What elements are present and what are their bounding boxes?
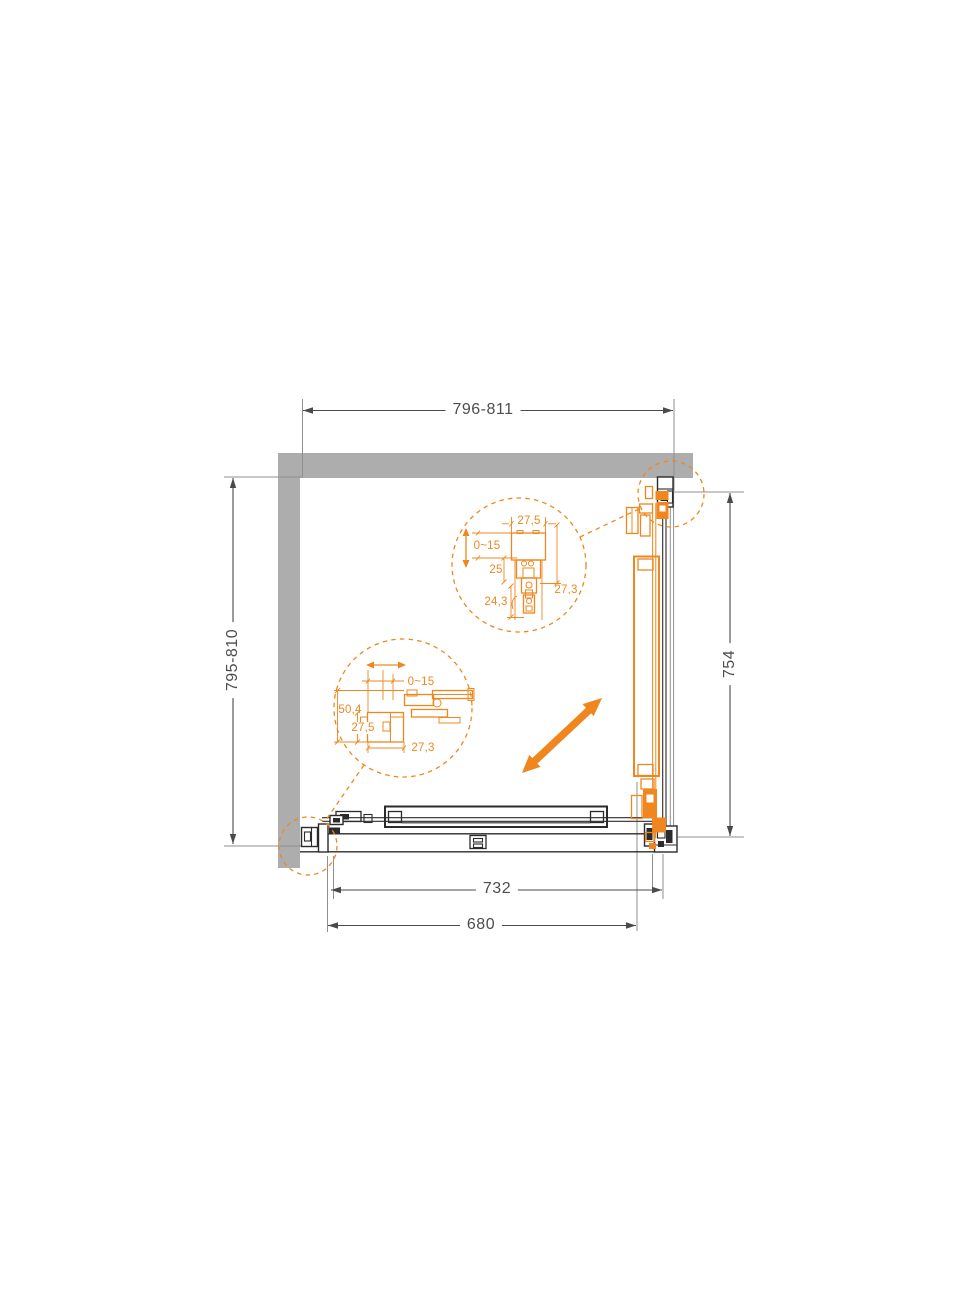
- detail-top-profile: [463, 517, 562, 620]
- side-panel: [663, 479, 674, 850]
- dim-right-height-label: 754: [720, 643, 740, 685]
- detail-top-width-label: 27,5: [517, 515, 540, 527]
- detail-side-width-label: 27,3: [411, 742, 434, 754]
- detail-top-adjust-label: 0~15: [474, 540, 501, 552]
- detail-side-adjust-label: 0~15: [408, 676, 435, 688]
- detail-top-depth-label: 27,3: [554, 584, 577, 596]
- detail-top-offset-label: 25: [489, 564, 502, 576]
- drawing-layer: [0, 0, 975, 1300]
- dim-top-width-label: 796-811: [445, 400, 520, 420]
- detail-side-height-label: 50,4: [338, 704, 361, 716]
- dim-bottom-outer-label: 732: [476, 879, 518, 899]
- bottom-door-assembly: [300, 807, 677, 852]
- detail-top-bottom-label: 24,3: [484, 596, 507, 608]
- technical-drawing-page: 796-811 795-810 754 732 680 27,5 0~15 25…: [0, 0, 975, 1300]
- dim-bottom-inner-label: 680: [460, 915, 502, 935]
- detail-side-profile-label: 27,5: [349, 722, 376, 734]
- diagonal-double-arrow-icon: [522, 698, 602, 773]
- dim-left-depth-label: 795-810: [223, 622, 243, 698]
